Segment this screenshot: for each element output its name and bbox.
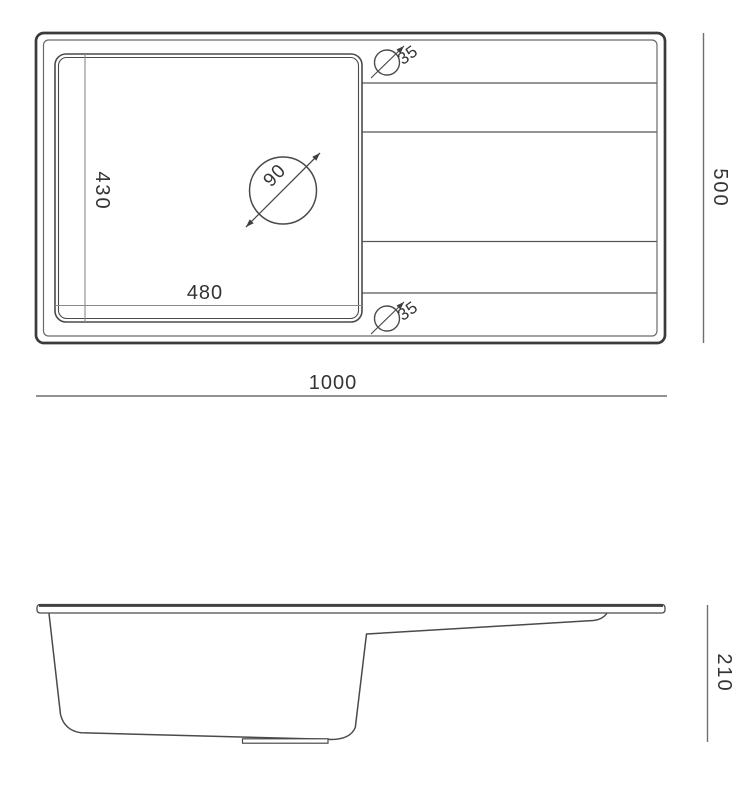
sink-technical-drawing: 430 480 90 35 35 1000 500	[0, 0, 755, 800]
overall-width-label: 1000	[309, 372, 358, 394]
bowl-width-label: 480	[187, 282, 223, 304]
drain-outlet-stub	[243, 739, 329, 743]
overall-height-label: 210	[713, 653, 735, 692]
top-view: 430 480 90 35 35 1000 500	[36, 33, 731, 396]
overall-depth-label: 500	[709, 168, 731, 207]
bowl-depth-label: 430	[91, 171, 113, 210]
bowl-profile-outline	[49, 614, 607, 740]
drawing-canvas: 430 480 90 35 35 1000 500	[0, 0, 755, 800]
side-view: 210	[37, 605, 735, 744]
